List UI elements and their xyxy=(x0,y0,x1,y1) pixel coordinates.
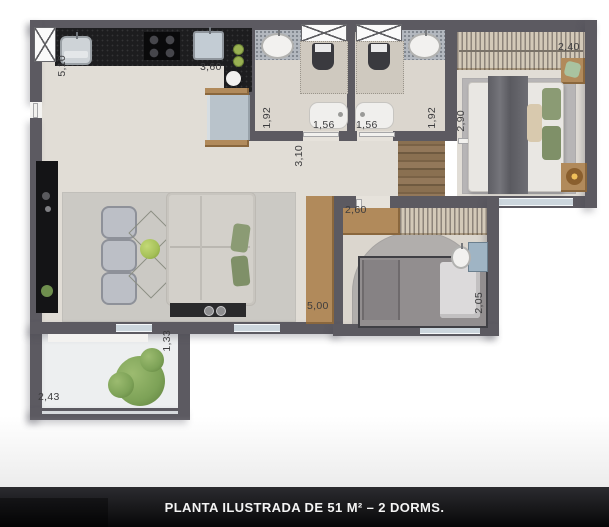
plant-icon xyxy=(233,56,244,67)
stove-icon xyxy=(144,32,180,60)
bed-pillow-icon xyxy=(527,104,542,142)
shower-icon xyxy=(301,24,347,42)
tv-speaker-icon xyxy=(45,206,51,212)
dim-bedroom2-width: 2,60 xyxy=(345,204,367,216)
page-fade xyxy=(0,416,609,487)
wall-bath-bottom xyxy=(245,131,457,141)
dining-chair-icon xyxy=(101,239,137,272)
dim-bath2-width: 1,56 xyxy=(356,119,378,131)
hallway-wood-floor xyxy=(398,138,445,196)
living-window xyxy=(234,324,280,332)
wall-living-bottom xyxy=(30,322,343,334)
background-thumbnail xyxy=(0,498,108,527)
entry-door-leaf xyxy=(33,103,38,118)
table-centerpiece-icon xyxy=(140,239,160,259)
toilet-icon xyxy=(312,43,334,70)
plant-icon xyxy=(41,285,53,297)
wall-between-baths xyxy=(347,20,355,140)
tub-drain-icon xyxy=(360,112,365,117)
console-speaker-icon xyxy=(216,306,226,316)
bed-runner-icon xyxy=(488,76,528,194)
sofa-pillow-icon xyxy=(230,255,250,287)
dim-balcony-depth: 1,33 xyxy=(161,330,173,352)
dim-living-depth: 3,10 xyxy=(293,145,305,167)
tv-speaker-icon xyxy=(42,192,50,200)
table-lamp-icon xyxy=(566,168,583,185)
refrigerator-icon xyxy=(207,95,250,140)
wall-bedroom2-left xyxy=(333,196,343,336)
caption-text: PLANTA ILUSTRADA DE 51 M² – 2 DORMS. xyxy=(165,500,445,515)
balcony-glass-door xyxy=(116,324,152,332)
dim-bath1-width: 1,56 xyxy=(313,119,335,131)
dim-bath1-depth: 1,92 xyxy=(261,107,273,129)
dim-closet-width: 2,40 xyxy=(558,41,580,53)
fridge-shelf-top xyxy=(205,88,249,95)
dim-bedroom2-depth: 2,05 xyxy=(473,292,485,314)
wall-balcony-right xyxy=(178,330,190,420)
floor-plan-page: { "caption": { "text": "PLANTA ILUSTRADA… xyxy=(0,0,609,527)
washbasin-icon xyxy=(261,33,294,59)
sofa-back-line xyxy=(200,196,202,300)
bed-pillow-icon xyxy=(542,88,561,120)
bath2-door-leaf xyxy=(359,132,395,137)
bath1-door-leaf xyxy=(303,132,339,137)
desk-icon xyxy=(468,242,488,272)
balcony-railing xyxy=(42,411,178,414)
dim-kitchen-height: 5,10 xyxy=(56,55,68,77)
plant-icon xyxy=(108,372,134,398)
fridge-shelf-bottom xyxy=(205,140,249,147)
kitchen-sink-icon xyxy=(193,31,224,60)
dim-bath2-depth: 1,92 xyxy=(426,107,438,129)
washbasin-icon xyxy=(408,33,441,59)
master-window xyxy=(497,198,573,206)
washing-machine-icon xyxy=(34,27,56,62)
dim-living-length: 5,00 xyxy=(307,300,329,312)
bed-pillow-icon xyxy=(542,126,561,160)
dim-suite-depth: 2,90 xyxy=(455,110,467,132)
balcony-threshold xyxy=(48,334,148,342)
toilet-icon xyxy=(368,43,390,70)
bed2-panel xyxy=(362,260,400,320)
closet-clothes-icon xyxy=(400,208,487,235)
plant-icon xyxy=(233,44,244,55)
tub-drain-icon xyxy=(338,112,343,117)
desk-chair-icon xyxy=(451,246,471,269)
dim-balcony-width: 2,43 xyxy=(38,391,60,403)
wall-bedroom2-right xyxy=(487,196,499,336)
stool-icon xyxy=(226,71,241,86)
shower-icon xyxy=(356,24,402,42)
dim-kitchen-width: 3,60 xyxy=(200,61,222,73)
console-speaker-icon xyxy=(204,306,214,316)
